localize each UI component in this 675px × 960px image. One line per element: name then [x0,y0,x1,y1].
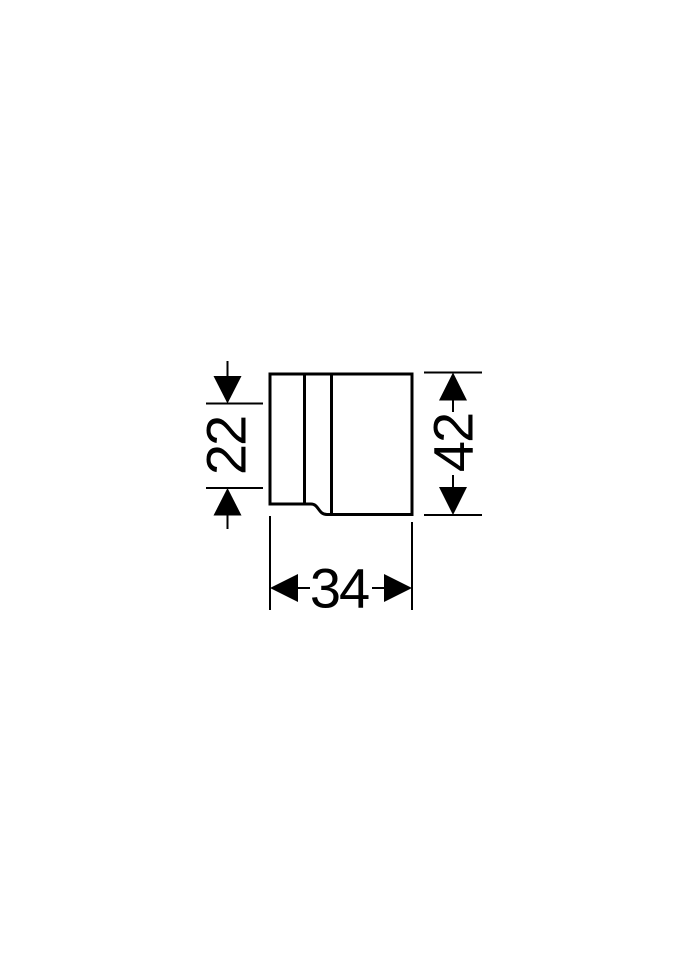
dimension-left-label: 22 [195,417,258,475]
dimension-right-label: 42 [422,414,485,472]
dimension-right-arrow-down-icon [439,487,467,515]
dimension-bottom-label: 34 [310,557,369,620]
part-outline [270,374,412,515]
dimension-drawing: 22 42 34 [0,0,675,960]
dimension-bottom-arrow-right-icon [384,574,412,602]
dimension-bottom: 34 [270,516,412,620]
dimension-bottom-arrow-left-icon [270,574,298,602]
dimension-right-arrow-up-icon [439,373,467,401]
drawing-canvas: 22 42 34 [0,0,675,960]
part-profile [270,374,412,515]
dimension-left-arrow-down-icon [214,376,242,404]
dimension-left-arrow-up-icon [214,488,242,516]
dimension-left: 22 [195,361,264,529]
dimension-right: 42 [422,373,485,516]
